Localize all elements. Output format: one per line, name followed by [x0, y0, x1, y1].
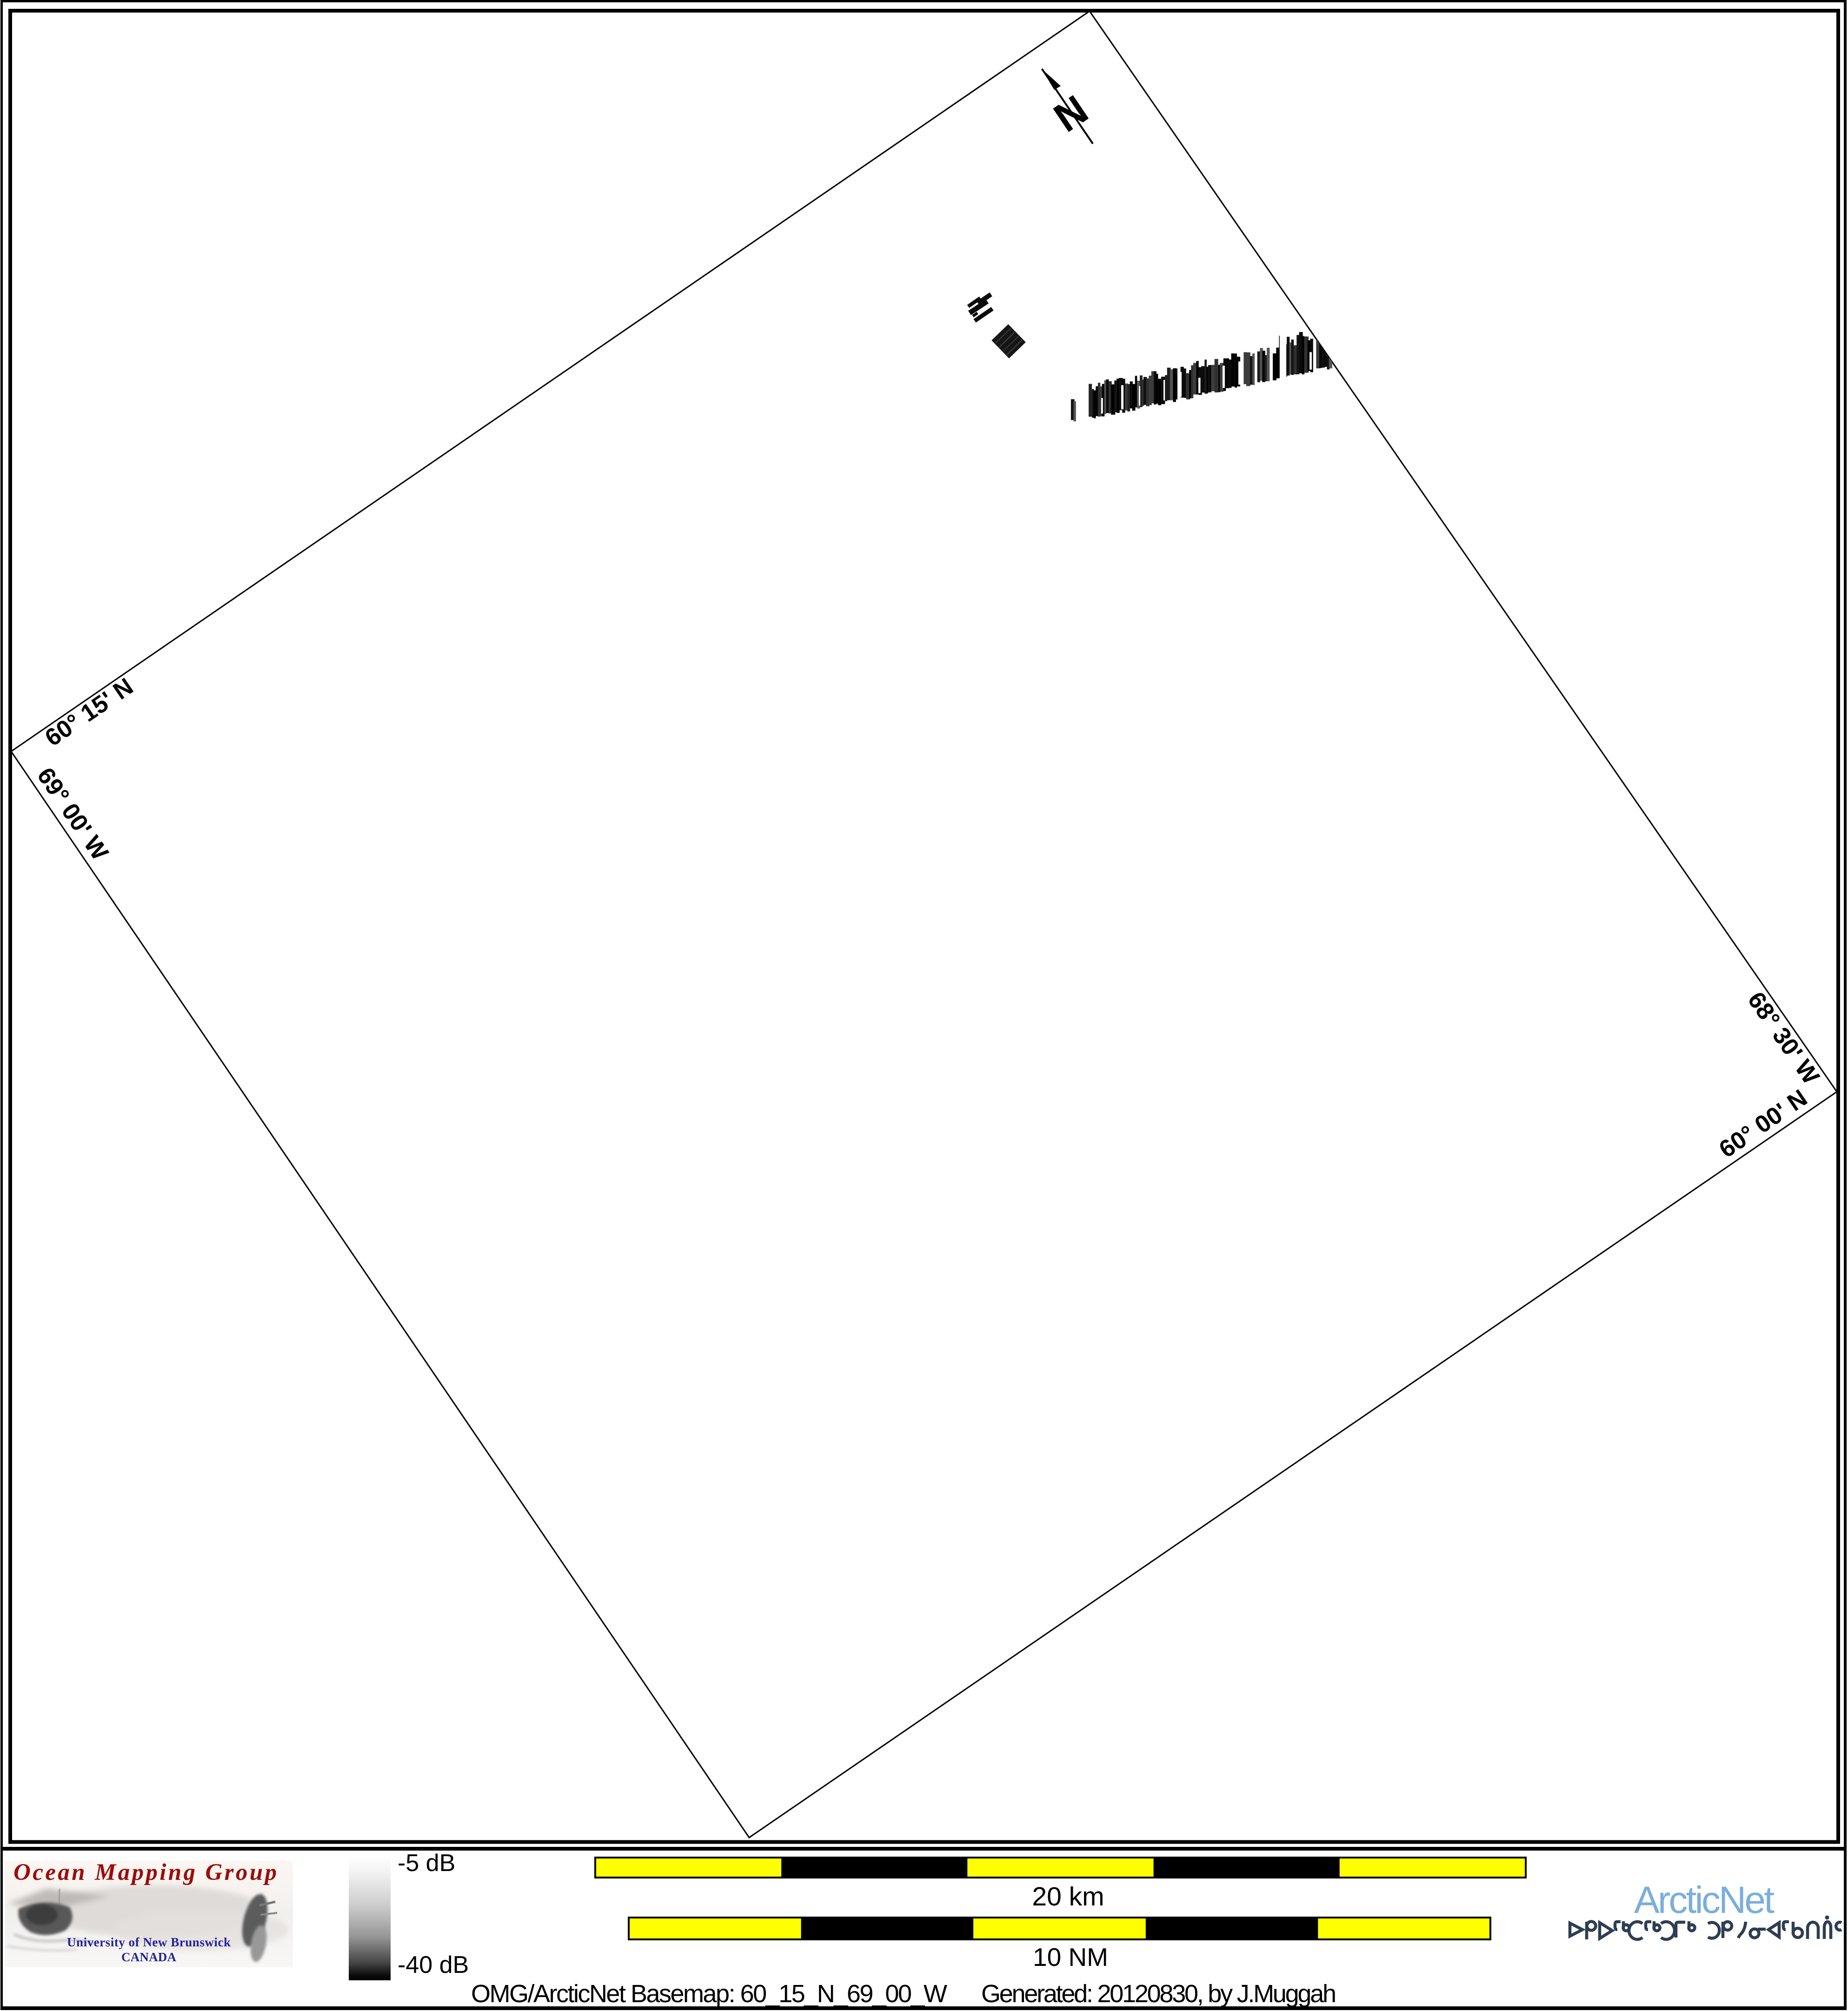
svg-text:10 NM: 10 NM: [1033, 1943, 1108, 1971]
svg-text:-40 dB: -40 dB: [398, 1951, 469, 1978]
svg-text:OMG/ArcticNet Basemap: 60_15_N: OMG/ArcticNet Basemap: 60_15_N_69_00_W: [471, 1980, 947, 2008]
svg-text:-5 dB: -5 dB: [398, 1850, 455, 1877]
svg-text:CANADA: CANADA: [121, 1950, 177, 1964]
svg-text:ArcticNet: ArcticNet: [1634, 1879, 1775, 1921]
svg-text:University of New Brunswick: University of New Brunswick: [67, 1935, 231, 1949]
svg-text:20 km: 20 km: [1032, 1882, 1104, 1911]
svg-text:Generated: 20120830, by J.Mugg: Generated: 20120830, by J.Muggah: [981, 1980, 1336, 2008]
